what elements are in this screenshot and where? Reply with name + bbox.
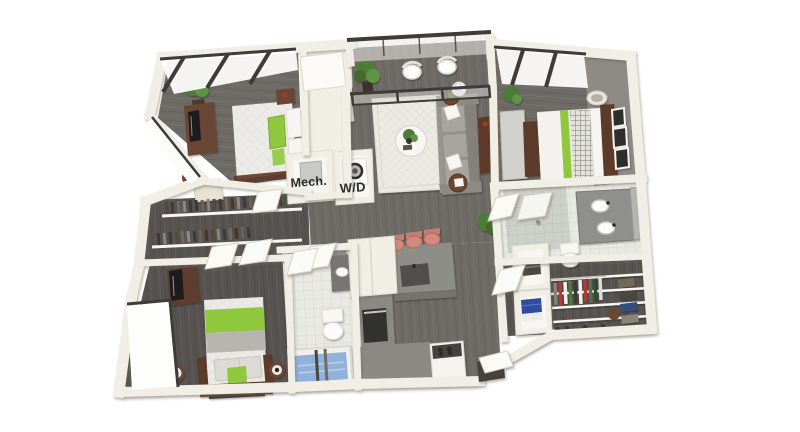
bedroom2-dresser-tv [184, 102, 218, 156]
balcony-chair-1 [403, 62, 421, 79]
wd-label: W/D [339, 179, 366, 196]
closet-right-stool [608, 308, 620, 320]
bedroom2-green-pillow [268, 115, 286, 149]
mech-label: Mech. [290, 174, 327, 191]
floorplan-render: Mech. W/D [0, 0, 800, 432]
bathroom2-toilet [560, 242, 579, 267]
kitchen-island [390, 242, 457, 301]
linen-closet-lower [514, 289, 552, 335]
kitchen-range [430, 341, 466, 382]
bedroom3-window [127, 300, 178, 390]
bedroom2-nightstand [276, 88, 295, 105]
bedroom1-bench [500, 110, 527, 180]
floorplan-svg: Mech. W/D [0, 0, 800, 432]
balcony-chair-2 [438, 57, 456, 74]
sliding-door-panel [300, 52, 346, 91]
bedroom1-windows [494, 47, 588, 88]
bedroom3-nightstand-right [269, 362, 285, 378]
bedroom3-green-blanket [205, 307, 265, 333]
bedroom3-bed [197, 297, 275, 397]
living-coffee-table [396, 126, 427, 157]
bedroom1-bed-frame [523, 121, 540, 177]
